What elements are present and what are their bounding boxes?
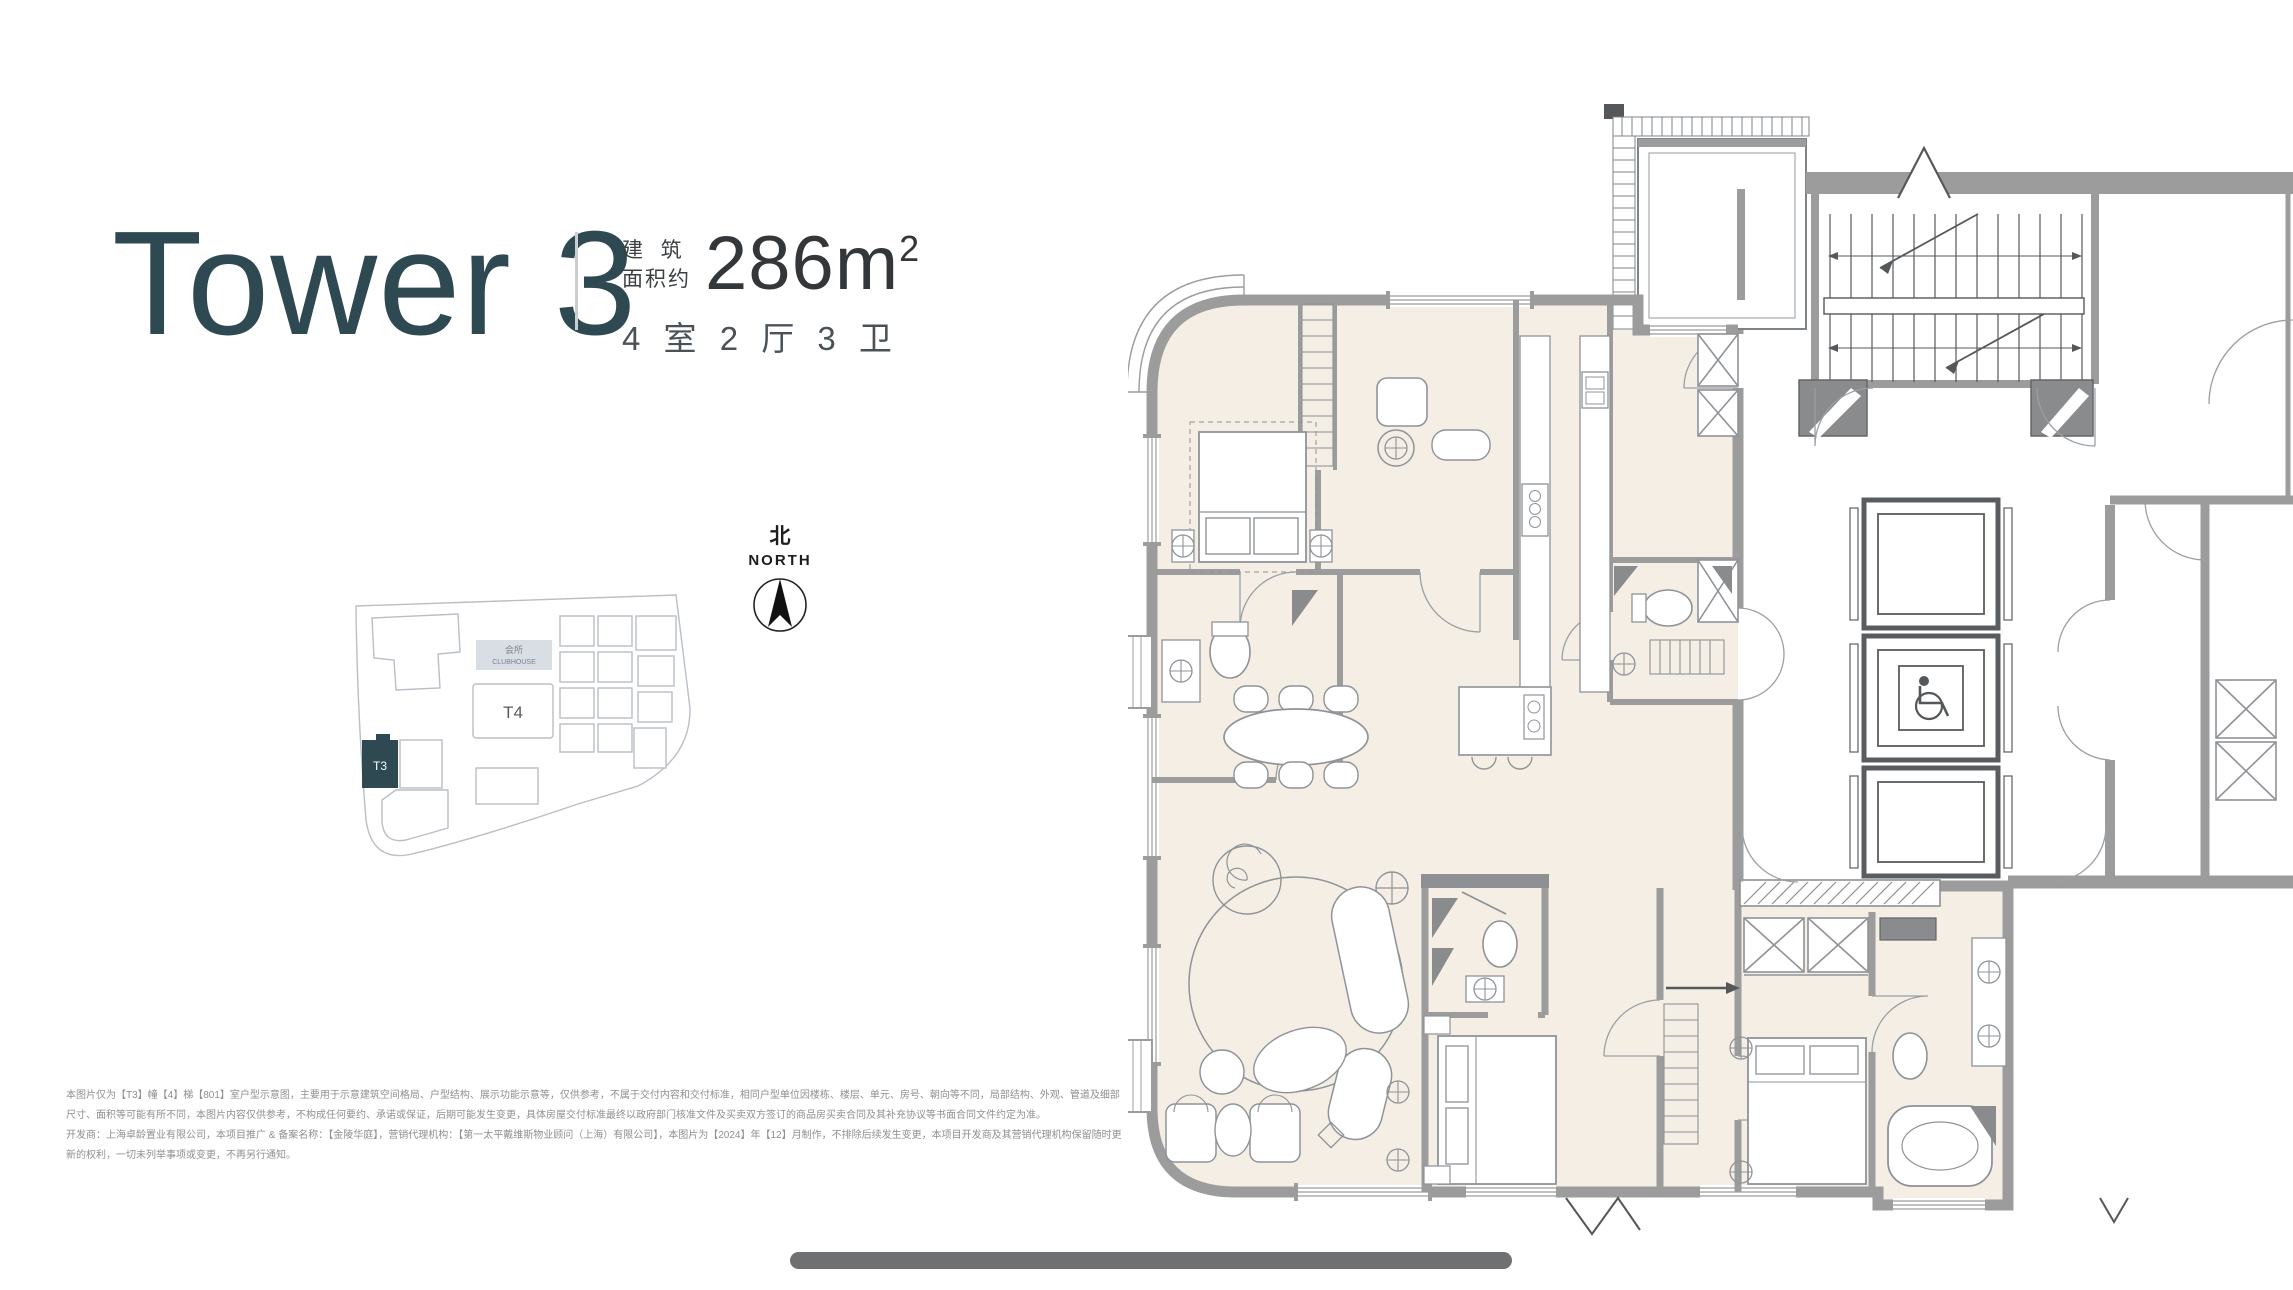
- area-unit: m: [835, 221, 899, 306]
- north-compass: 北 NORTH: [732, 520, 828, 640]
- area-label-line2: 面积约: [622, 265, 691, 294]
- balcony-door-bump: [1128, 1040, 1152, 1112]
- area-number: 286: [705, 221, 835, 306]
- site-clubhouse-zh: 会所: [505, 644, 523, 655]
- disclaimer-paragraph: 开发商：上海卓龄置业有限公司，本项目推广 & 备案名称：【金陵华庭】，营销代理机…: [66, 1126, 1122, 1166]
- break-symbol: [1566, 1198, 1640, 1234]
- spec-block: 建 筑面积约 286m2 4 室 2 厅 3 卫: [622, 226, 920, 360]
- core-top-wall: [1806, 146, 2293, 198]
- title-divider: [575, 232, 578, 330]
- hatched-wall: [1740, 880, 1940, 906]
- bathtub: [1888, 1106, 1992, 1186]
- area-label-line1: 建 筑: [622, 236, 691, 265]
- kitchen-sink: [1582, 372, 1608, 408]
- site-plan: 会所 CLUBHOUSE T4 T3: [336, 590, 714, 872]
- break-symbol: [2100, 1198, 2128, 1222]
- dining-table: [1224, 686, 1368, 788]
- balcony-door-bump: [1128, 636, 1152, 708]
- disclaimer: 本图片仅为【T3】幢【4】梯【801】室户型示意图，主要用于示意建筑空间格局、户…: [66, 1086, 1122, 1166]
- cooktop: [1522, 484, 1548, 536]
- bedroom-3: [1424, 1016, 1556, 1184]
- room-layout-text: 4 室 2 厅 3 卫: [622, 312, 920, 360]
- bottom-drag-bar[interactable]: [790, 1252, 1512, 1269]
- bedroom-4: [1730, 1037, 1866, 1184]
- site-t3-label: T3: [373, 759, 387, 773]
- compass-en-label: NORTH: [732, 552, 828, 569]
- core-floor: [1738, 183, 2293, 882]
- area-label: 建 筑面积约: [622, 236, 691, 294]
- site-clubhouse-en: CLUBHOUSE: [492, 659, 536, 666]
- area-unit-sup: 2: [899, 228, 920, 269]
- refuge-box: [1638, 139, 1806, 329]
- site-t4-label: T4: [503, 703, 523, 722]
- compass-zh-label: 北: [732, 520, 828, 550]
- page-title: Tower 3: [112, 210, 637, 358]
- north-arrow-icon: [747, 569, 813, 635]
- page: Tower 3 建 筑面积约 286m2 4 室 2 厅 3 卫 北 NORTH: [0, 0, 2293, 1290]
- floor-plan: [1128, 88, 2293, 1268]
- area-value: 286m2: [705, 226, 920, 302]
- disclaimer-paragraph: 本图片仅为【T3】幢【4】梯【801】室户型示意图，主要用于示意建筑空间格局、户…: [66, 1086, 1122, 1126]
